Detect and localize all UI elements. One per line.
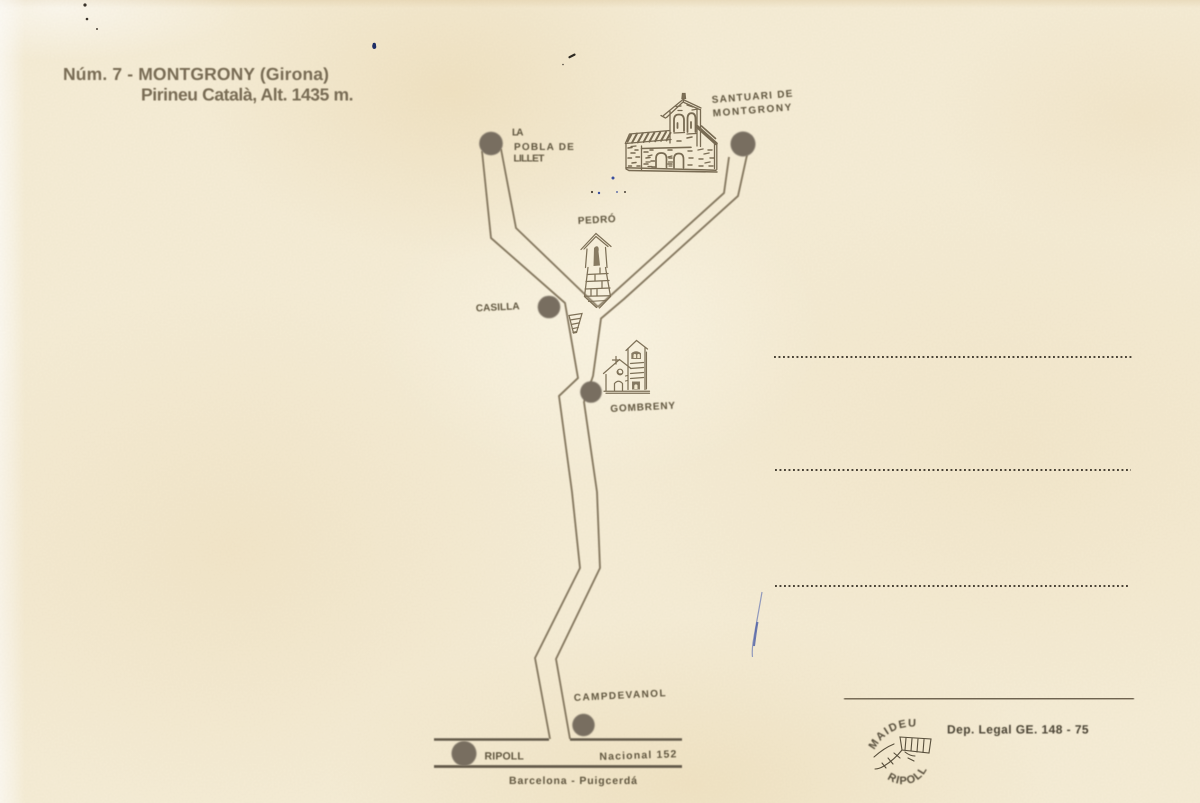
svg-text:LILLET: LILLET bbox=[514, 154, 546, 165]
svg-text:POBLA DE: POBLA DE bbox=[514, 142, 575, 153]
svg-text:Pirineu Català, Alt. 1435 m.: Pirineu Català, Alt. 1435 m. bbox=[141, 85, 354, 105]
svg-text:Núm. 7 - MONTGRONY (Girona): Núm. 7 - MONTGRONY (Girona) bbox=[63, 64, 330, 84]
svg-text:PEDRÓ: PEDRÓ bbox=[578, 213, 618, 227]
svg-text:CASILLA: CASILLA bbox=[476, 301, 522, 314]
svg-text:Barcelona - Puigcerdá: Barcelona - Puigcerdá bbox=[509, 775, 638, 787]
svg-text:Dep. Legal GE. 148 - 75: Dep. Legal GE. 148 - 75 bbox=[947, 723, 1090, 737]
svg-text:LA: LA bbox=[512, 128, 525, 139]
svg-text:RIPOLL: RIPOLL bbox=[485, 751, 526, 763]
